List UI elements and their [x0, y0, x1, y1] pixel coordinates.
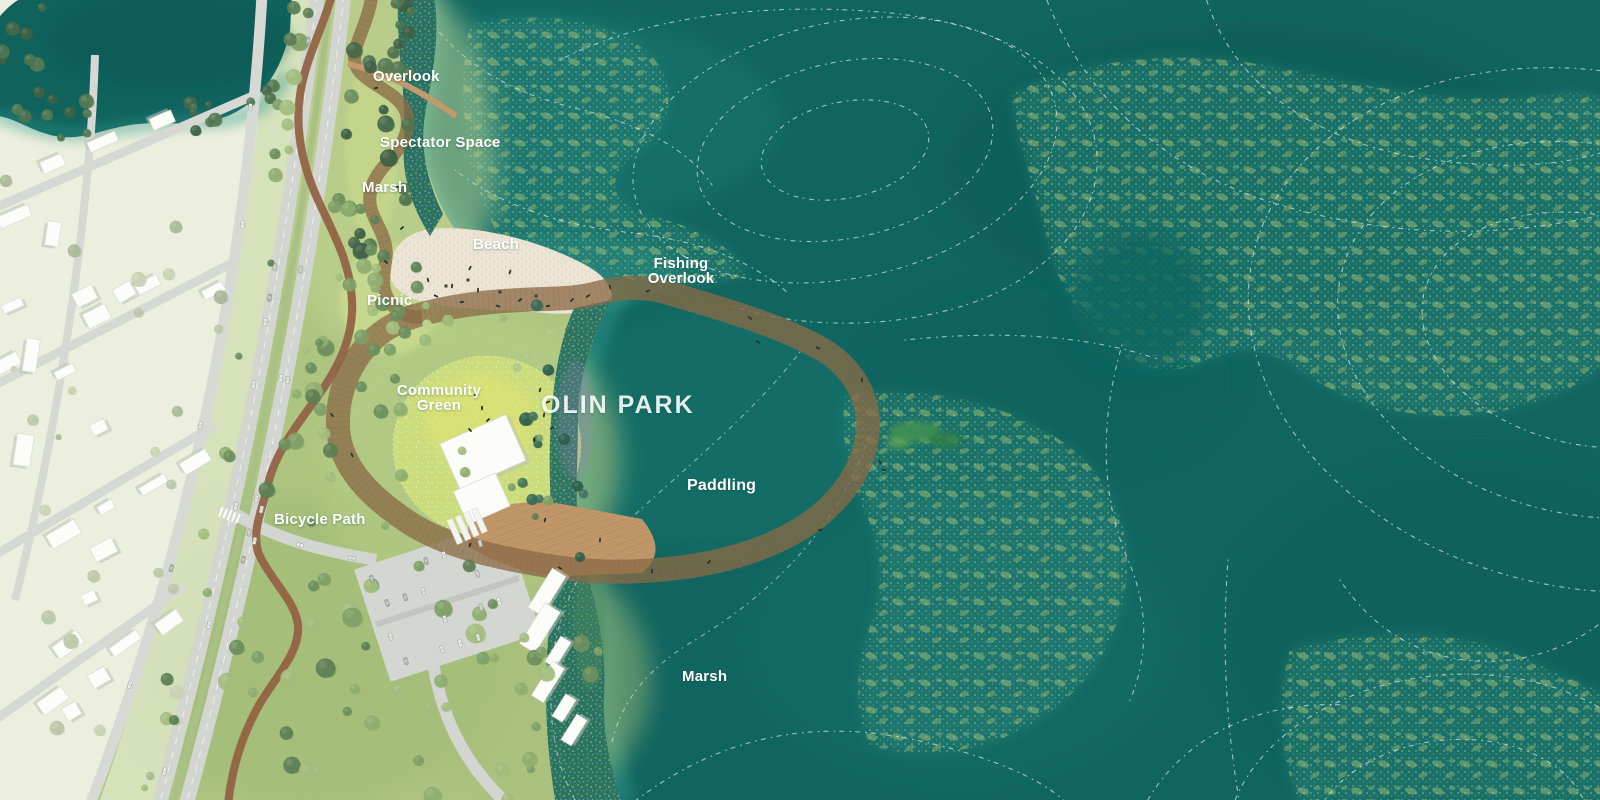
- label-paddling: Paddling: [687, 478, 756, 493]
- park-title: OLIN PARK: [541, 393, 695, 418]
- label-marsh-south: Marsh: [682, 669, 727, 684]
- label-overlook: Overlook: [373, 69, 440, 84]
- label-beach: Beach: [473, 237, 519, 252]
- label-bicycle-path: Bicycle Path: [274, 512, 366, 527]
- olin-park-site-plan: Overlook Spectator Space Marsh Beach Fis…: [0, 0, 1600, 800]
- label-picnic: Picnic: [367, 293, 412, 308]
- label-marsh-north: Marsh: [362, 180, 407, 195]
- site-plan-rendering: [0, 0, 1600, 800]
- label-community-green: Community Green: [389, 383, 489, 413]
- label-spectator-space: Spectator Space: [380, 135, 501, 150]
- label-fishing-overlook: Fishing Overlook: [631, 256, 731, 286]
